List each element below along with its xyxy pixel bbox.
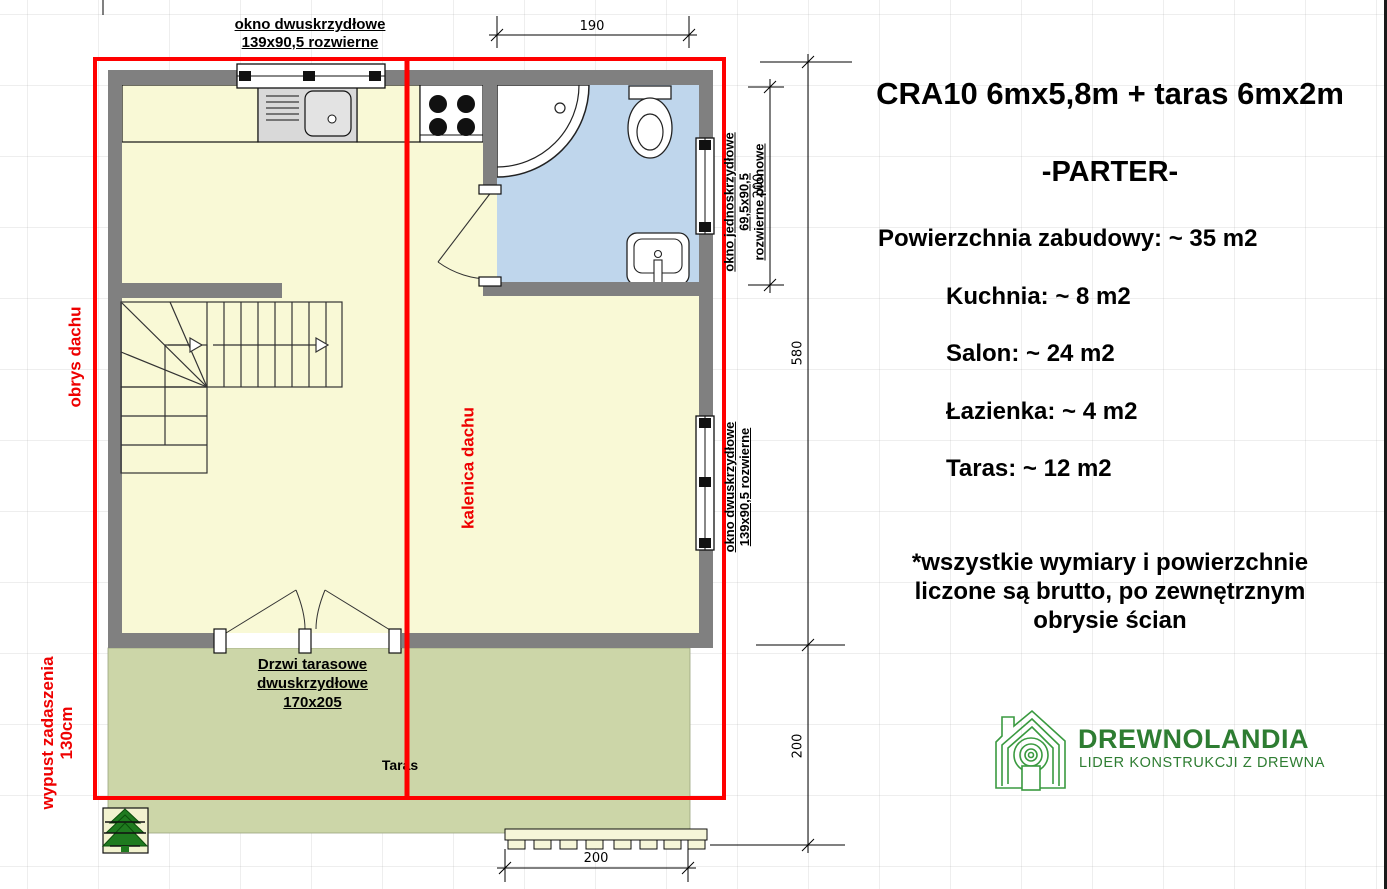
window-top-label: okno dwuskrzydłowe 139x90,5 rozwierne [215, 16, 405, 52]
measurement-note: *wszystkie wymiary i powierzchnie liczon… [840, 548, 1380, 635]
window-right-bottom-icon [696, 416, 714, 550]
window-top-icon [237, 64, 385, 88]
dim-house-right-580: 580 [791, 341, 806, 366]
logo-house-icon [988, 708, 1070, 792]
room-area-terrace: Taras: ~ 12 m2 [946, 455, 1112, 483]
terrace-area [108, 648, 690, 833]
room-area-livingroom: Salon: ~ 24 m2 [946, 340, 1115, 368]
canopy-label: wypust zadaszenia 130cm [38, 656, 76, 809]
terrace-door-label: Drzwi tarasowe dwuskrzydłowe 170x205 [230, 655, 395, 712]
floor-name: -PARTER- [840, 156, 1380, 189]
window-right-bottom-label: okno dwuskrzydłowe 139x90,5 rozwierne [722, 422, 752, 553]
toilet-icon [628, 86, 672, 158]
dim-bottom-200: 200 [572, 851, 620, 866]
window-right-top-icon [696, 138, 714, 234]
dim-window-right-200: 200 [752, 174, 767, 199]
page-title: CRA10 6mx5,8m + taras 6mx2m [840, 76, 1380, 112]
dim-terrace-right-200: 200 [791, 734, 806, 759]
total-area-text: Powierzchnia zabudowy: ~ 35 m2 [878, 225, 1257, 253]
floor-plan-page: okno dwuskrzydłowe 139x90,5 rozwierne 19… [0, 0, 1387, 889]
room-area-kitchen: Kuchnia: ~ 8 m2 [946, 283, 1131, 311]
window-right-top-label: okno jednoskrzydłowe 69,5x90,5 rozwierne… [722, 132, 767, 271]
roof-outline-label: obrys dachu [66, 306, 85, 407]
terrace-label: Taras [376, 756, 424, 774]
sink-unit-icon [258, 85, 357, 142]
roof-ridge-label: kalenica dachu [459, 407, 478, 529]
logo-tagline: LIDER KONSTRUKCJI Z DREWNA [1079, 755, 1325, 771]
dim-top-190: 190 [568, 19, 616, 34]
terrace-steps-icon [505, 829, 707, 849]
logo-name: DREWNOLANDIA [1078, 724, 1309, 755]
bathroom-sink-icon [627, 233, 689, 285]
tree-icon [103, 808, 148, 853]
room-area-bathroom: Łazienka: ~ 4 m2 [946, 398, 1137, 426]
stove-icon [420, 85, 483, 142]
